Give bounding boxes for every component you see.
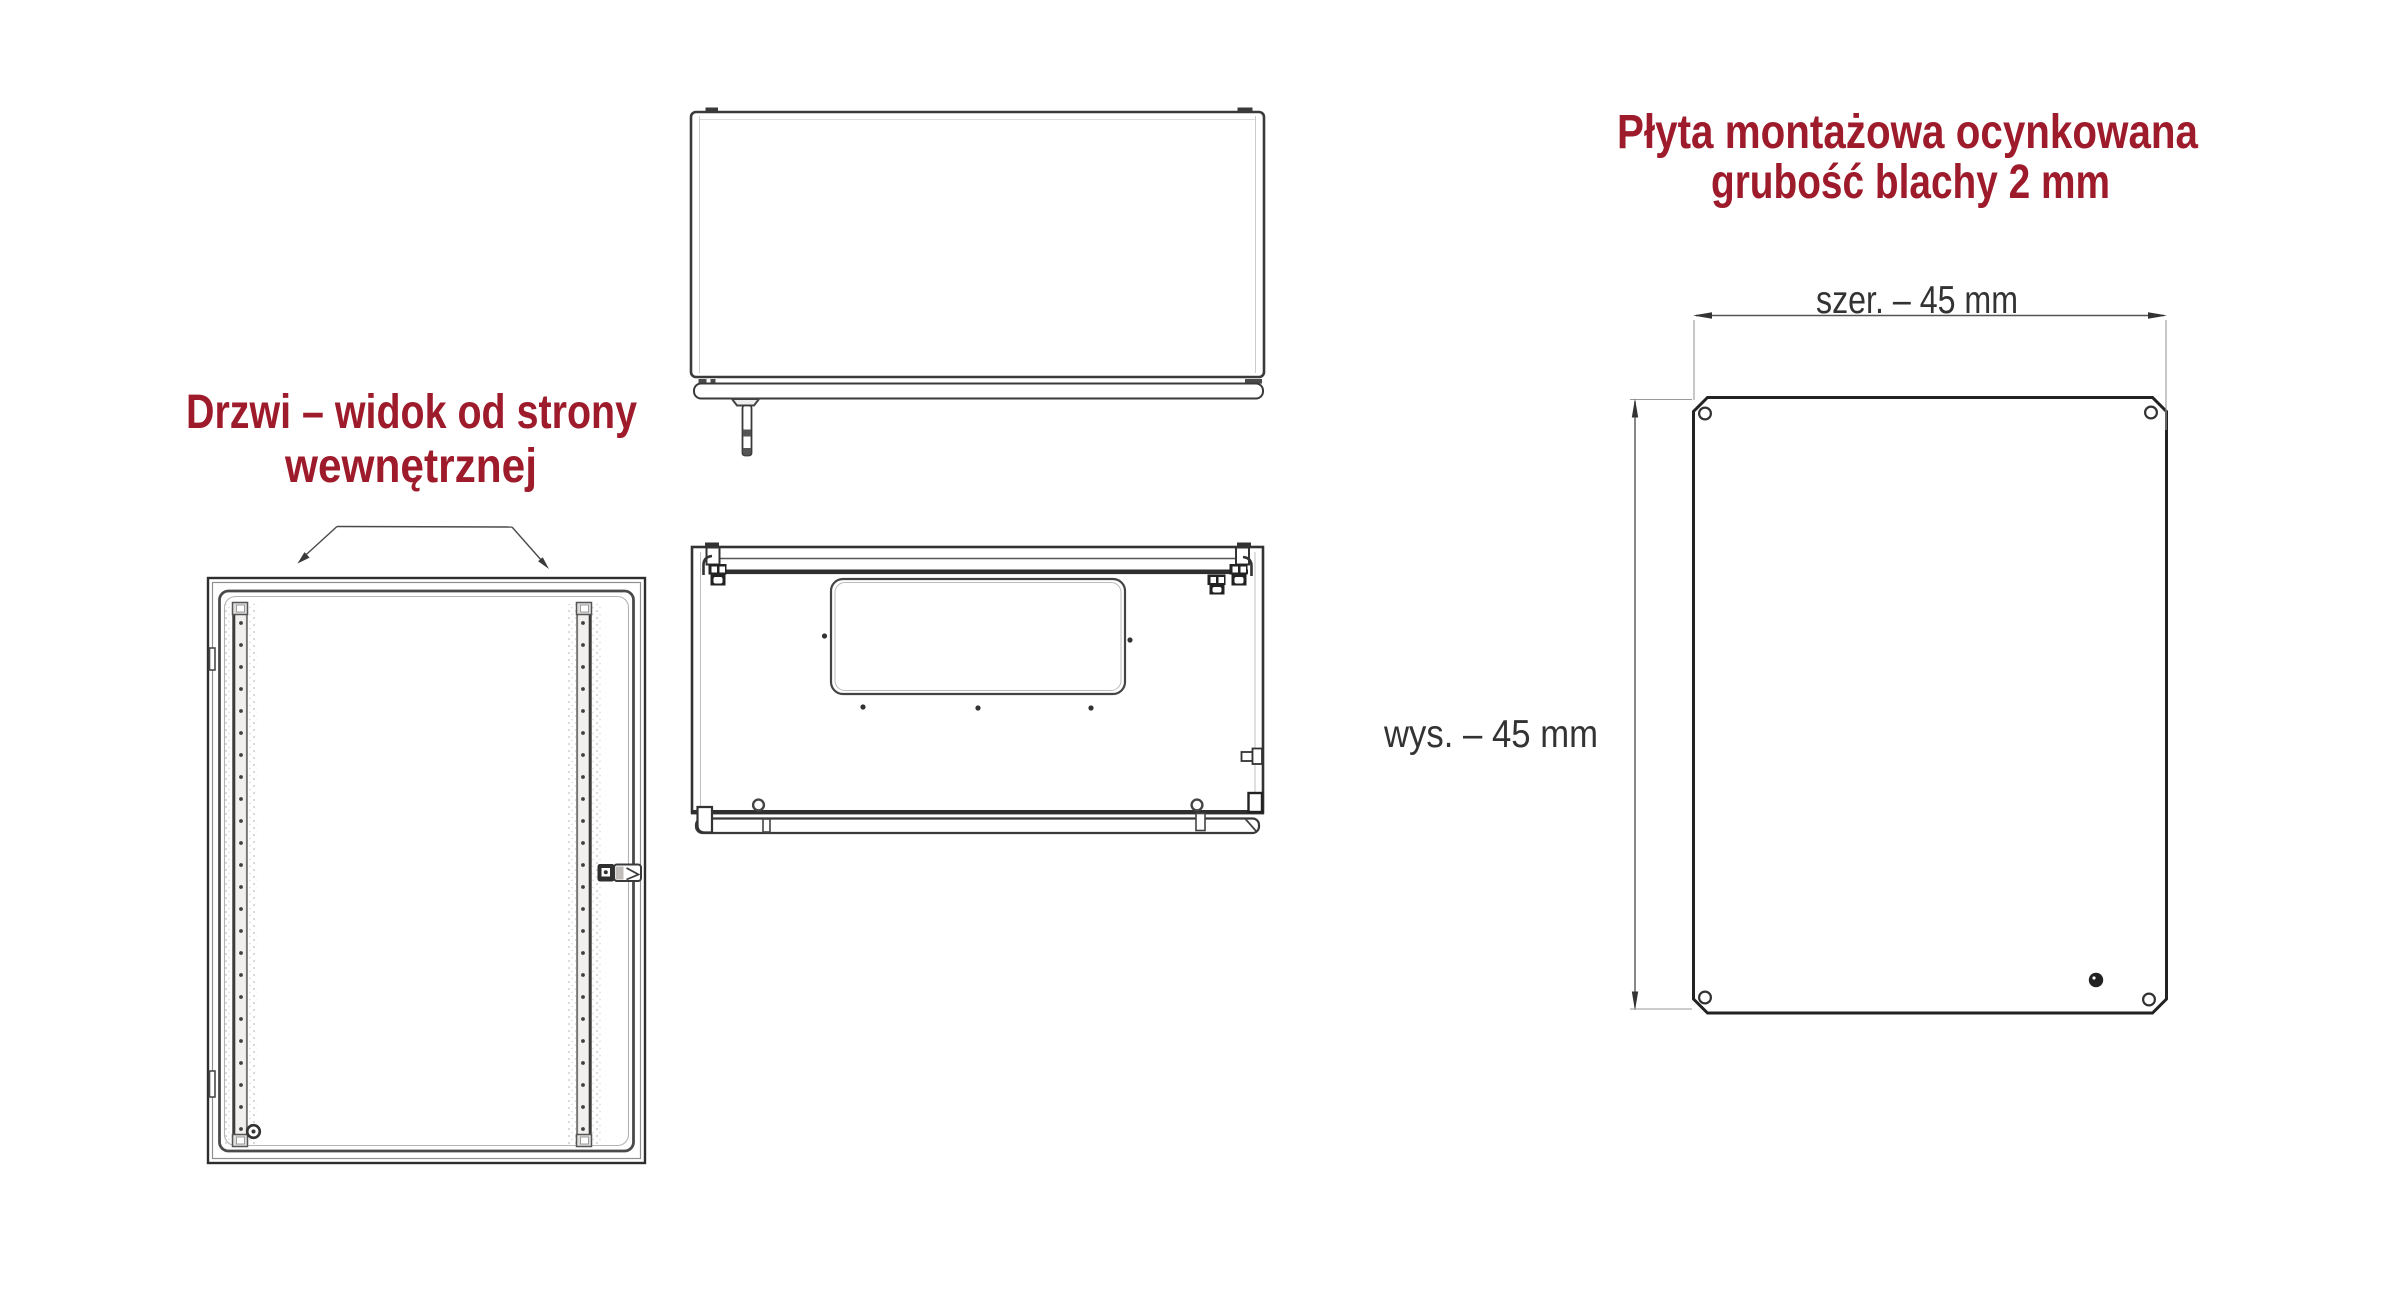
svg-text:grubość blachy 2 mm: grubość blachy 2 mm — [1711, 156, 2110, 209]
svg-text:wys. – 45 mm: wys. – 45 mm — [1383, 713, 1598, 756]
svg-text:wewnętrznej: wewnętrznej — [284, 440, 537, 493]
svg-text:Płyta montażowa ocynkowana: Płyta montażowa ocynkowana — [1617, 106, 2198, 159]
svg-text:szer. – 45 mm: szer. – 45 mm — [1816, 279, 2018, 322]
svg-text:Drzwi – widok od strony: Drzwi – widok od strony — [186, 386, 637, 439]
